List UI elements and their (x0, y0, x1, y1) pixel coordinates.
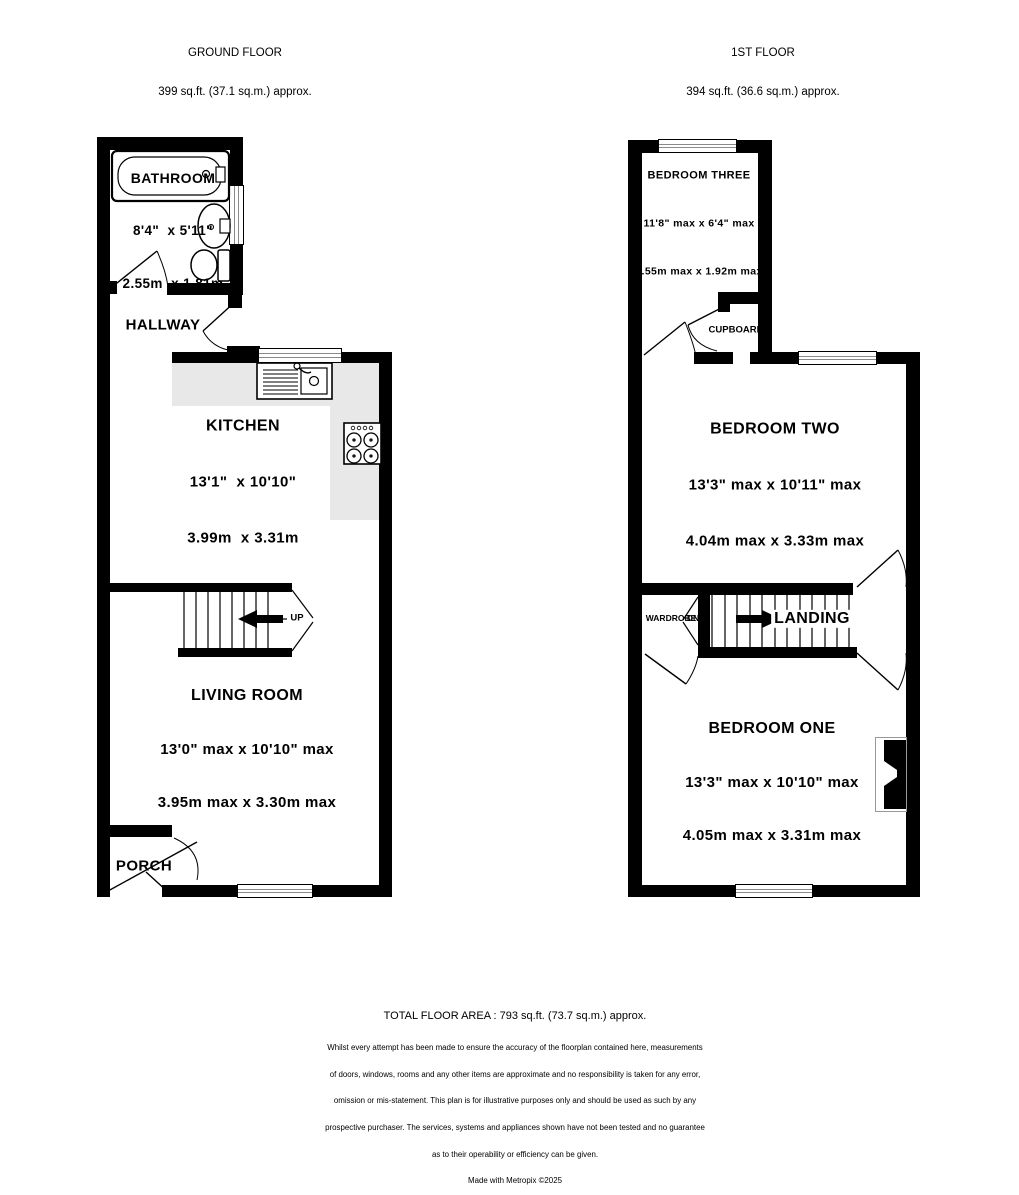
disclaimer-line: omission or mis-statement. This plan is … (325, 1097, 705, 1106)
room-label-bedroom-two: BEDROOM TWO 13'3" max x 10'11" max 4.04m… (686, 382, 865, 569)
room-label-cupboard: CUPBOARD (709, 326, 764, 337)
disclaimer-line: of doors, windows, rooms and any other i… (325, 1071, 705, 1080)
wall (640, 583, 853, 595)
stair-end-wall (698, 595, 710, 647)
wall (110, 583, 292, 592)
wall (172, 352, 227, 363)
door-jamb (227, 346, 260, 363)
metropix-credit: Made with Metropix ©2025 (325, 1177, 705, 1186)
window (258, 348, 342, 363)
room-name: BEDROOM THREE (635, 170, 762, 182)
wall (230, 137, 243, 185)
room-name: BEDROOM ONE (683, 720, 862, 737)
wall (750, 352, 798, 364)
wall (97, 137, 110, 897)
room-name: HALLWAY (126, 316, 201, 333)
room-label-living-room: LIVING ROOM 13'0" max x 10'10" max 3.95m… (158, 650, 337, 830)
room-label-kitchen: KITCHEN 13'1" x 10'10" 3.99m x 3.31m (187, 379, 299, 566)
room-label-bedroom-one: BEDROOM ONE 13'3" max x 10'10" max 4.05m… (683, 683, 862, 863)
window (229, 185, 244, 245)
kitchen-counter (330, 363, 379, 520)
wall (162, 885, 237, 897)
total-floor-area: TOTAL FLOOR AREA : 793 sq.ft. (73.7 sq.m… (384, 1010, 647, 1022)
floorplan-page: { "colors": {"wall":"#000000","counter":… (0, 0, 1019, 1080)
room-name: LIVING ROOM (158, 687, 337, 704)
room-dims-imperial: 11'8" max x 6'4" max (635, 218, 762, 230)
first-floor-title: 1ST FLOOR (686, 47, 839, 60)
room-dims-metric: 4.04m max x 3.33m max (686, 532, 865, 552)
door-hinge-stub (110, 281, 117, 294)
room-dims-imperial: 13'3" max x 10'10" max (683, 774, 862, 791)
wall (628, 885, 735, 897)
disclaimer-line: prospective purchaser. The services, sys… (325, 1124, 705, 1133)
room-name: BEDROOM TWO (686, 419, 865, 439)
window (798, 351, 877, 365)
stairs-up-arrow (238, 610, 283, 628)
room-dims-metric: 3.55m max x 1.92m max (635, 267, 762, 279)
room-dims-metric: 4.05m max x 3.31m max (683, 827, 862, 844)
wall (906, 352, 920, 897)
ground-floor-title: GROUND FLOOR (158, 47, 311, 60)
room-name: BATHROOM (123, 170, 224, 187)
room-label-porch: PORCH (116, 823, 172, 892)
wall (379, 352, 392, 897)
room-dims-imperial: 13'3" max x 10'11" max (686, 475, 865, 495)
room-label-landing: LANDING (771, 610, 853, 628)
room-name: KITCHEN (187, 416, 299, 436)
wall (228, 295, 242, 308)
room-dims-imperial: 8'4" x 5'11" (123, 223, 224, 240)
room-name: PORCH (116, 857, 172, 874)
window (237, 884, 313, 898)
ground-floor-header: GROUND FLOOR 399 sq.ft. (37.1 sq.m.) app… (158, 21, 311, 112)
disclaimer-line: Whilst every attempt has been made to en… (325, 1044, 705, 1053)
first-floor-area: 394 sq.ft. (36.6 sq.m.) approx. (686, 86, 839, 99)
first-floor-header: 1ST FLOOR 394 sq.ft. (36.6 sq.m.) approx… (686, 21, 839, 112)
room-label-hallway: HALLWAY (126, 282, 201, 351)
room-dims-imperial: 13'0" max x 10'10" max (158, 741, 337, 758)
stairs-down-label: DN (687, 614, 699, 624)
room-dims-metric: 3.99m x 3.31m (187, 529, 299, 549)
room-label-bedroom-three: BEDROOM THREE 11'8" max x 6'4" max 3.55m… (635, 133, 762, 296)
chimney-breast (875, 737, 907, 812)
wall (694, 352, 733, 364)
wall (313, 885, 392, 897)
stair-rail (698, 647, 857, 658)
stairs-up-label: UP (290, 614, 303, 625)
disclaimer-line: as to their operability or efficiency ca… (325, 1151, 705, 1160)
window (735, 884, 813, 898)
wall (813, 885, 920, 897)
ground-floor-area: 399 sq.ft. (37.1 sq.m.) approx. (158, 86, 311, 99)
disclaimer: Whilst every attempt has been made to en… (325, 1026, 705, 1195)
room-dims-metric: 3.95m max x 3.30m max (158, 794, 337, 811)
room-dims-imperial: 13'1" x 10'10" (187, 472, 299, 492)
